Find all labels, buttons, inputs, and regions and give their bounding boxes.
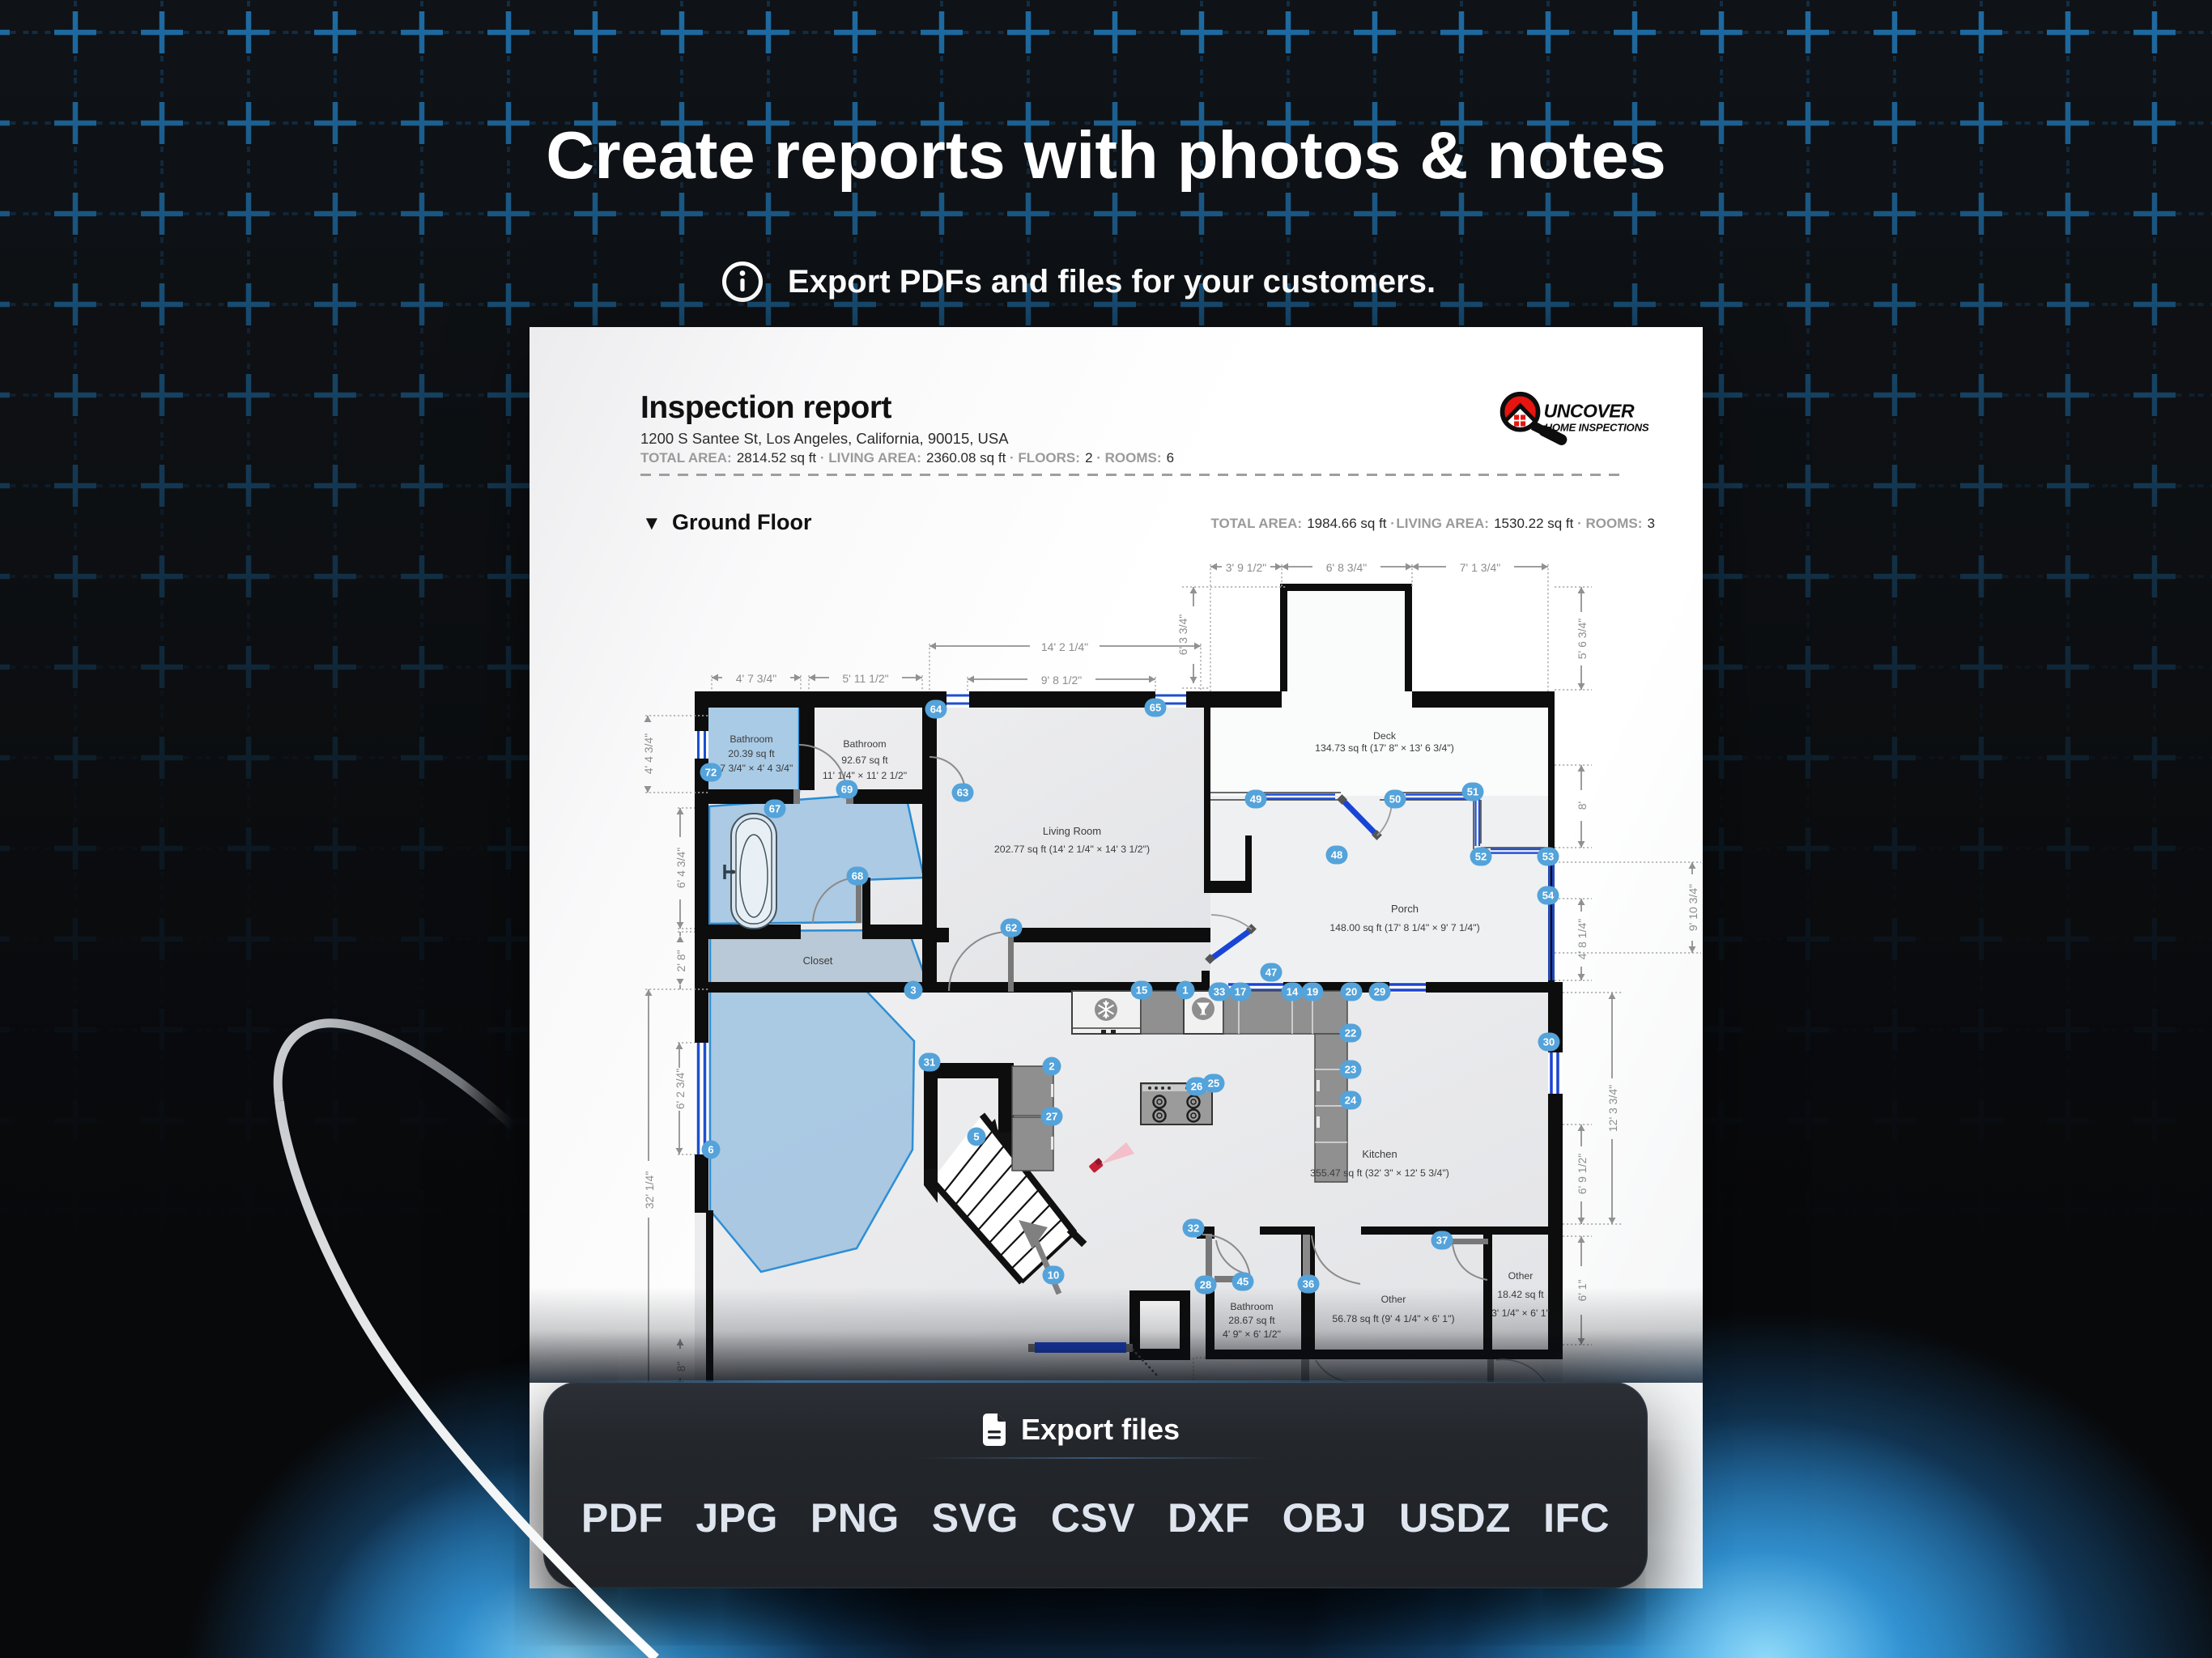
svg-text:5' 11 1/2": 5' 11 1/2" [842, 672, 888, 685]
svg-text:4' 8 1/4": 4' 8 1/4" [1576, 919, 1589, 959]
svg-text:32: 32 [1188, 1222, 1199, 1235]
svg-text:31: 31 [924, 1056, 935, 1069]
svg-text:2' 8": 2' 8" [674, 950, 687, 971]
svg-text:23: 23 [1345, 1064, 1356, 1076]
svg-text:1: 1 [1182, 984, 1188, 997]
svg-text:15: 15 [1136, 984, 1147, 997]
svg-text:11' 1/4" × 11' 2 1/2": 11' 1/4" × 11' 2 1/2" [823, 770, 907, 781]
svg-text:Closet: Closet [803, 954, 833, 967]
svg-text:3: 3 [910, 984, 916, 997]
svg-text:134.73 sq ft (17' 8" × 13' 6 3: 134.73 sq ft (17' 8" × 13' 6 3/4") [1315, 742, 1454, 754]
svg-text:49: 49 [1250, 793, 1261, 806]
svg-text:62: 62 [1006, 922, 1017, 934]
svg-text:5: 5 [973, 1131, 979, 1143]
svg-text:6: 6 [708, 1144, 713, 1156]
svg-text:47: 47 [1266, 967, 1277, 979]
svg-text:7' 1 3/4": 7' 1 3/4" [1460, 561, 1500, 574]
svg-text:14: 14 [1287, 986, 1299, 998]
svg-text:4' 7 3/4": 4' 7 3/4" [736, 672, 776, 685]
svg-text:51: 51 [1467, 786, 1478, 798]
svg-text:33: 33 [1214, 986, 1225, 998]
svg-text:37: 37 [1436, 1235, 1448, 1247]
svg-text:202.77 sq ft (14' 2 1/4" × 14': 202.77 sq ft (14' 2 1/4" × 14' 3 1/2") [994, 844, 1150, 855]
svg-text:67: 67 [769, 803, 781, 815]
svg-text:6' 3 3/4": 6' 3 3/4" [1176, 614, 1189, 655]
svg-text:65: 65 [1150, 702, 1161, 714]
svg-text:4' 4 3/4": 4' 4 3/4" [642, 733, 655, 774]
svg-text:6' 8 3/4": 6' 8 3/4" [1326, 561, 1367, 574]
svg-text:14' 2 1/4": 14' 2 1/4" [1041, 640, 1088, 653]
svg-text:17: 17 [1235, 986, 1246, 998]
svg-text:48: 48 [1331, 849, 1342, 861]
svg-text:68: 68 [852, 870, 863, 882]
svg-text:30: 30 [1543, 1036, 1555, 1048]
svg-text:10: 10 [1048, 1269, 1059, 1282]
svg-text:45: 45 [1237, 1276, 1249, 1288]
svg-text:Bathroom: Bathroom [843, 738, 886, 750]
svg-text:50: 50 [1389, 793, 1401, 806]
svg-text:9' 8 1/2": 9' 8 1/2" [1041, 674, 1082, 687]
svg-text:2: 2 [1049, 1061, 1054, 1073]
svg-text:Other: Other [1508, 1270, 1534, 1282]
svg-text:Kitchen: Kitchen [1362, 1148, 1397, 1160]
svg-text:Porch: Porch [1391, 903, 1419, 915]
svg-text:29: 29 [1374, 986, 1385, 998]
svg-text:54: 54 [1542, 890, 1555, 902]
svg-text:4' 7 3/4" × 4' 4 3/4": 4' 7 3/4" × 4' 4 3/4" [710, 763, 793, 774]
svg-text:3' 9 1/2": 3' 9 1/2" [1226, 561, 1266, 574]
svg-text:20.39 sq ft: 20.39 sq ft [728, 748, 775, 759]
svg-text:63: 63 [957, 787, 968, 799]
svg-text:6' 4 3/4": 6' 4 3/4" [674, 848, 687, 888]
svg-text:22: 22 [1345, 1027, 1356, 1039]
svg-text:64: 64 [930, 704, 942, 716]
svg-text:355.47 sq ft (32' 3" × 12' 5 3: 355.47 sq ft (32' 3" × 12' 5 3/4") [1310, 1167, 1449, 1179]
svg-text:72: 72 [705, 767, 717, 779]
svg-text:Living Room: Living Room [1043, 825, 1101, 837]
svg-text:148.00 sq ft (17' 8 1/4" × 9': 148.00 sq ft (17' 8 1/4" × 9' 7 1/4") [1329, 922, 1479, 933]
svg-text:6' 2 3/4": 6' 2 3/4" [674, 1069, 687, 1109]
svg-text:26: 26 [1191, 1081, 1202, 1093]
svg-text:8': 8' [1576, 801, 1589, 810]
svg-text:53: 53 [1542, 851, 1554, 863]
svg-text:27: 27 [1046, 1111, 1057, 1123]
svg-text:12' 3 3/4": 12' 3 3/4" [1606, 1085, 1619, 1132]
svg-text:32' 1/4": 32' 1/4" [643, 1171, 656, 1209]
svg-text:5' 6 3/4": 5' 6 3/4" [1576, 619, 1589, 659]
svg-text:6' 9 1/2": 6' 9 1/2" [1576, 1154, 1589, 1194]
svg-text:19: 19 [1307, 986, 1318, 998]
svg-text:20: 20 [1346, 986, 1357, 998]
svg-text:52: 52 [1475, 851, 1487, 863]
svg-text:25: 25 [1208, 1078, 1219, 1090]
svg-text:Bathroom: Bathroom [730, 733, 772, 745]
svg-text:92.67 sq ft: 92.67 sq ft [841, 755, 888, 766]
svg-text:69: 69 [841, 784, 853, 796]
svg-text:24: 24 [1345, 1095, 1357, 1107]
svg-text:Deck: Deck [1373, 730, 1397, 742]
svg-text:9' 10 3/4": 9' 10 3/4" [1687, 884, 1699, 931]
